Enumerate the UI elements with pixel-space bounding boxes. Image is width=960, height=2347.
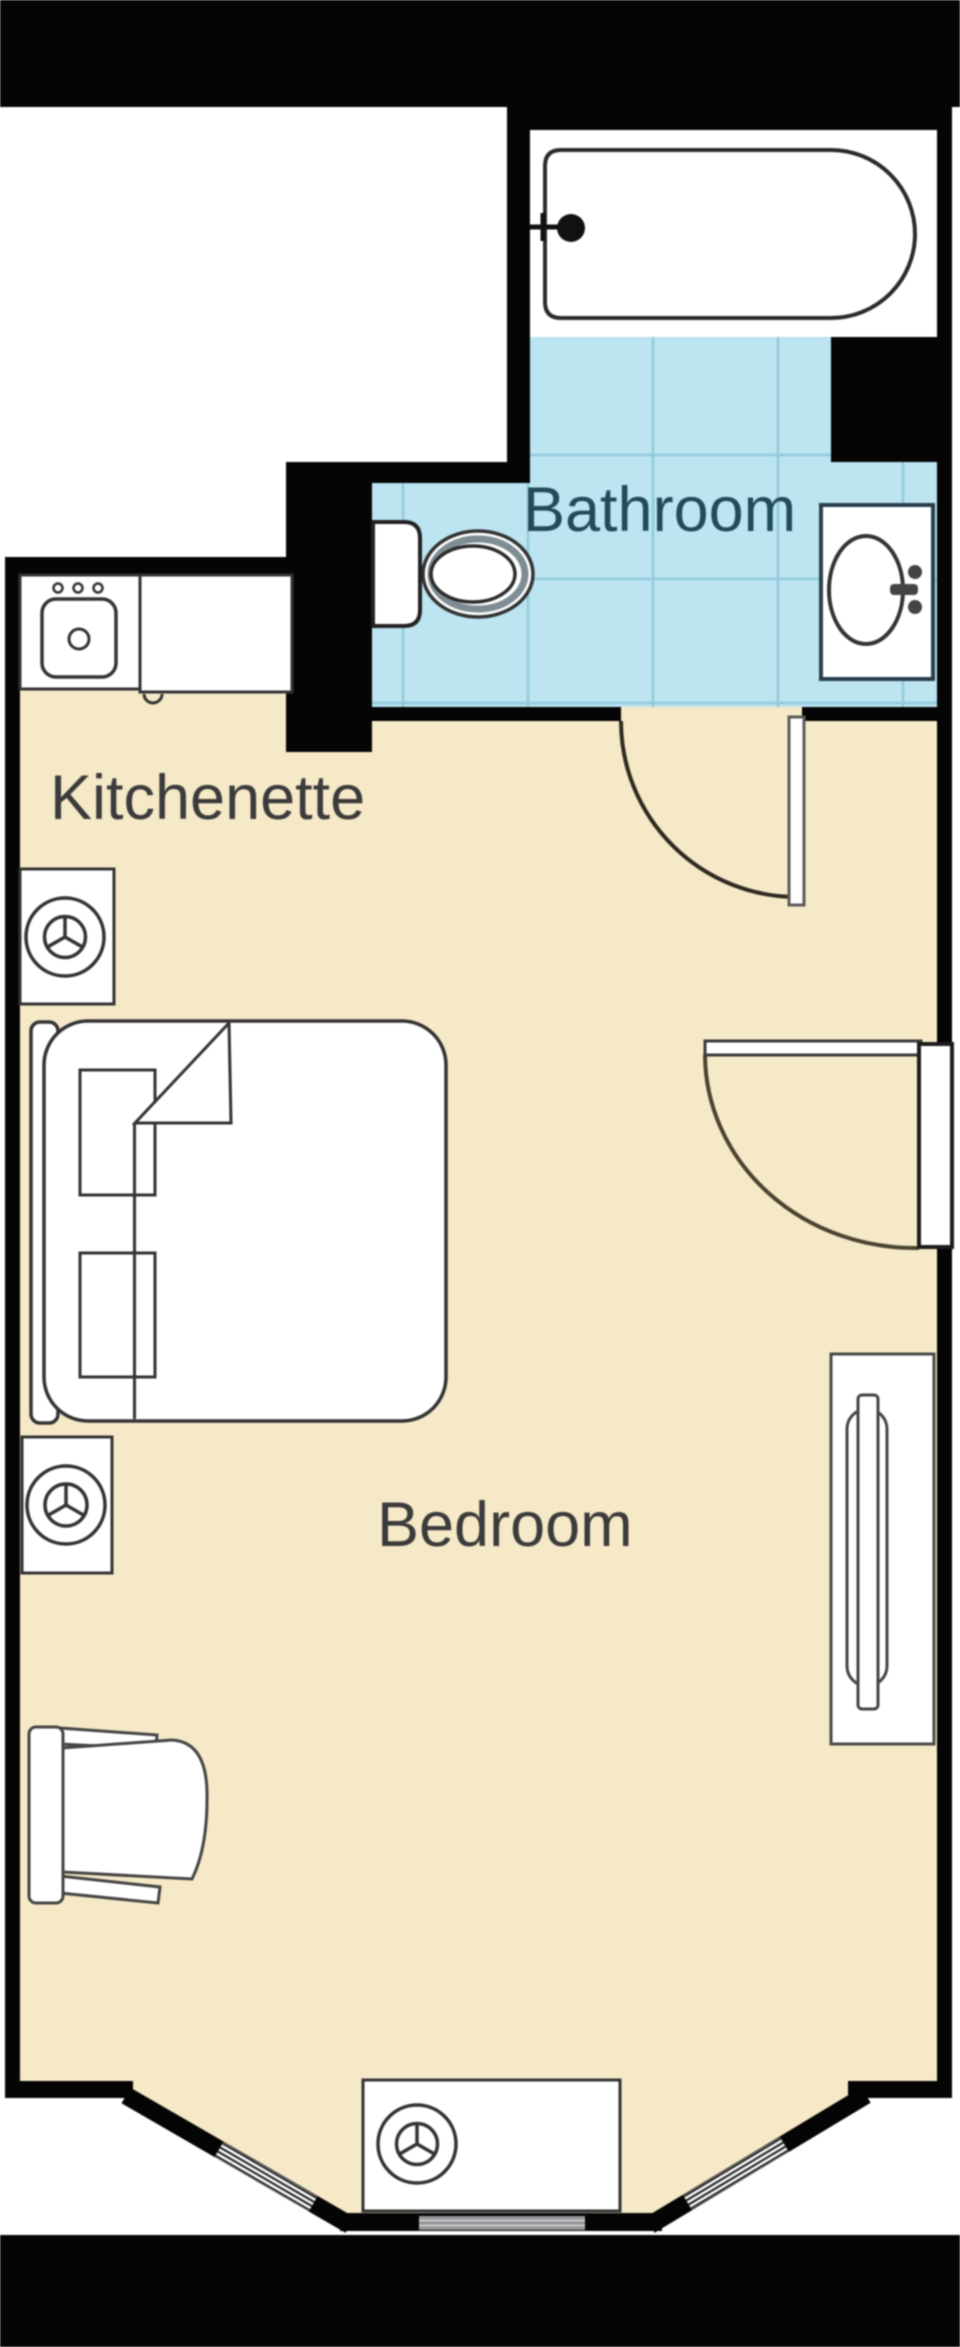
- svg-text:Kitchenette: Kitchenette: [50, 763, 365, 833]
- svg-text:Bedroom: Bedroom: [377, 1490, 633, 1560]
- svg-text:Bathroom: Bathroom: [523, 475, 796, 545]
